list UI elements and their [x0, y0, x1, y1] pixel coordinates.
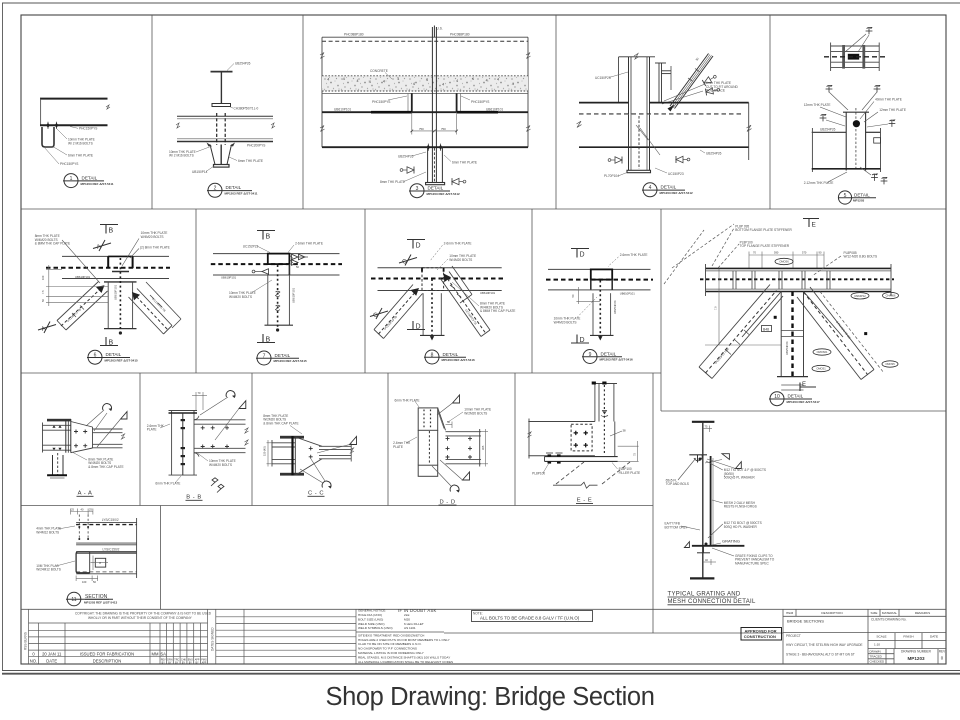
svg-text:PHC200PYS: PHC200PYS: [247, 144, 265, 148]
svg-text:BOLT SIZE (UNO): BOLT SIZE (UNO): [358, 617, 383, 621]
svg-text:PHC088P180: PHC088P180: [344, 32, 364, 36]
svg-text:MP1203: MP1203: [907, 656, 925, 661]
svg-text:DESCRIPTION: DESCRIPTION: [821, 611, 842, 615]
svg-text:PHC150PYS: PHC150PYS: [471, 100, 489, 104]
svg-text:2-6mm THK PLATE: 2-6mm THK PLATE: [620, 253, 648, 257]
svg-text:GRATING: GRATING: [722, 538, 740, 543]
svg-text:ALL MATERIAL U.FABRICATION SHA: ALL MATERIAL U.FABRICATION SHALL BE TO R…: [358, 660, 453, 664]
svg-text:M20: M20: [404, 617, 410, 621]
svg-text:BOTTOM ONLY: BOTTOM ONLY: [665, 525, 689, 529]
svg-text:REAL STANDS, M.S DISTANCE SHAF: REAL STANDS, M.S DISTANCE SHAFTS (M2) 10…: [358, 655, 450, 659]
svg-text:NO.: NO.: [30, 658, 37, 663]
svg-text:20 JAN 11: 20 JAN 11: [42, 651, 62, 656]
svg-text:MANUFACTURE SPEC: MANUFACTURE SPEC: [735, 561, 770, 565]
svg-text:PL70P104: PL70P104: [604, 174, 619, 178]
svg-text:B: B: [266, 234, 271, 241]
svg-text:UB610P101: UB610P101: [75, 275, 91, 279]
svg-text:MESH CONNECTION DETAIL: MESH CONNECTION DETAIL: [668, 599, 757, 605]
svg-text:W/2M20 BOLTS: W/2M20 BOLTS: [464, 412, 487, 416]
svg-text:UB254P26: UB254P26: [706, 151, 722, 155]
svg-text:UB254P26: UB254P26: [785, 341, 789, 355]
svg-text:U.S.: U.S.: [437, 27, 443, 31]
svg-text:150 (45): 150 (45): [263, 446, 267, 456]
svg-text:E: E: [802, 382, 806, 388]
svg-text:UC150P23: UC150P23: [668, 172, 684, 176]
svg-text:W/4M20 BOLTS: W/4M20 BOLTS: [141, 235, 164, 239]
svg-text:12mm THK PLATE: 12mm THK PLATE: [879, 108, 906, 112]
svg-text:W/24M12 BOLTS: W/24M12 BOLTS: [36, 568, 61, 572]
svg-text:OMOS1: OMOS1: [816, 367, 826, 371]
svg-text:DATE: DATE: [46, 658, 57, 663]
svg-text:UB610P101: UB610P101: [334, 108, 351, 112]
svg-text:TOP FLANGE PLATE STIFFENER: TOP FLANGE PLATE STIFFENER: [740, 244, 790, 248]
svg-text:UB254P26: UB254P26: [820, 128, 836, 132]
svg-text:D - D: D - D: [439, 499, 455, 505]
svg-text:W/ 2 M16 BOLTS: W/ 2 M16 BOLTS: [169, 154, 194, 158]
svg-text:BRIDGE SECTIONS: BRIDGE SECTIONS: [787, 619, 824, 624]
svg-text:ITEM: ITEM: [786, 611, 794, 615]
svg-text:RESTS FLNISH DRGS: RESTS FLNISH DRGS: [724, 505, 757, 509]
svg-text:BY: BY: [168, 661, 172, 664]
svg-text:FINISH: FINISH: [903, 634, 913, 638]
svg-text:4: 4: [343, 77, 345, 81]
svg-text:MP1203 REF Δ/ST-5415: MP1203 REF Δ/ST-5415: [274, 359, 308, 363]
svg-text:GENERAL NOTICE:: GENERAL NOTICE:: [358, 609, 386, 613]
svg-text:DETAIL: DETAIL: [854, 192, 870, 197]
svg-text:W/12-M20 8.8G BOLTS: W/12-M20 8.8G BOLTS: [844, 255, 878, 259]
svg-text:W/4M20 BOLTS: W/4M20 BOLTS: [209, 463, 232, 467]
svg-text:MP1203: MP1203: [853, 199, 865, 203]
svg-text:UB610P101: UB610P101: [620, 291, 636, 295]
svg-text:DETAIL: DETAIL: [601, 351, 617, 356]
svg-text:DETAIL: DETAIL: [661, 185, 677, 190]
svg-text:W/4M20 BOLTS: W/4M20 BOLTS: [554, 320, 577, 324]
svg-text:W/ 2 M16 BOLTS: W/ 2 M16 BOLTS: [68, 141, 93, 145]
svg-text:6 LEG FILLET: 6 LEG FILLET: [404, 622, 424, 626]
svg-text:6mm THK PLATE: 6mm THK PLATE: [452, 161, 477, 165]
svg-text:D: D: [416, 324, 421, 331]
svg-text:E - E: E - E: [577, 498, 592, 504]
svg-text:4: 4: [497, 77, 499, 81]
svg-text:4: 4: [486, 78, 488, 82]
svg-text:1:10: 1:10: [874, 643, 880, 647]
svg-text:REV: REV: [939, 650, 946, 654]
svg-text:8mm THK PLATE: 8mm THK PLATE: [380, 180, 405, 184]
svg-text:6mm THK PLATE: 6mm THK PLATE: [68, 154, 93, 158]
svg-text:CONSTRUCTION: CONSTRUCTION: [744, 634, 776, 639]
svg-text:OMOS6: OMOS6: [779, 260, 789, 264]
svg-text:50SQx5 PL WASHER: 50SQx5 PL WASHER: [724, 476, 756, 480]
svg-text:MP1203 REF Δ/ST-5416: MP1203 REF Δ/ST-5416: [442, 358, 476, 362]
svg-text:6mm THK PLATE: 6mm THK PLATE: [155, 482, 180, 486]
svg-text:DESCRIPTION: DESCRIPTION: [93, 658, 122, 663]
svg-text:4: 4: [512, 82, 514, 86]
svg-text:TYPICAL GRATING AND: TYPICAL GRATING AND: [668, 591, 741, 597]
svg-text:BOTTOM FLANGE PLATE STIFFENER: BOTTOM FLANGE PLATE STIFFENER: [735, 228, 792, 232]
svg-text:DETAIL: DETAIL: [275, 353, 291, 358]
svg-text:W/4M12 BOLTS: W/4M12 BOLTS: [36, 530, 59, 534]
svg-text:STAGE 3 - BEHAVIOURAL ALT D ST: STAGE 3 - BEHAVIOURAL ALT D ST-MT GN ST: [786, 652, 855, 656]
svg-text:4: 4: [472, 77, 474, 81]
svg-text:D: D: [416, 243, 421, 250]
svg-text:IF IN DOUBT ASK: IF IN DOUBT ASK: [398, 608, 437, 613]
svg-text:UB610P101: UB610P101: [221, 276, 237, 280]
svg-text:22ø: 22ø: [404, 613, 409, 617]
svg-text:ISSUED FOR FABRICATION: ISSUED FOR FABRICATION: [80, 651, 134, 656]
svg-text:DETAIL: DETAIL: [226, 185, 242, 190]
svg-text:4: 4: [369, 80, 371, 84]
svg-text:MP1203 REF Δ/ST-5412: MP1203 REF Δ/ST-5412: [660, 191, 694, 195]
svg-text:RSS BLKNS: RSS BLKNS: [24, 632, 28, 650]
svg-text:REMARKS: REMARKS: [915, 611, 930, 615]
svg-text:ALL BOLTS TO BE GRADE 8.8 GALV: ALL BOLTS TO BE GRADE 8.8 GALV / TF (U.N…: [480, 616, 580, 621]
svg-text:UB610P101: UB610P101: [480, 291, 496, 295]
svg-text:SIZE: SIZE: [871, 611, 878, 615]
svg-text:& 8mm THK CAP PLATE: & 8mm THK CAP PLATE: [263, 422, 298, 426]
svg-text:750: 750: [419, 127, 424, 131]
svg-text:7.5: 7.5: [41, 290, 45, 294]
svg-text:12mm THK PLATE: 12mm THK PLATE: [804, 103, 831, 107]
svg-text:UC152P23: UC152P23: [243, 244, 259, 248]
svg-text:HWY CIRCUIT, THE STELRIN HIGH: HWY CIRCUIT, THE STELRIN HIGH WAY UPGRAD…: [786, 643, 863, 647]
svg-text:DETAIL: DETAIL: [106, 352, 122, 357]
svg-text:BY: BY: [175, 661, 179, 664]
svg-text:SA: SA: [160, 651, 166, 656]
svg-text:CLAD TO BE ON SITE OF MEMBERS: CLAD TO BE ON SITE OF MEMBERS U.N.O.: [358, 642, 422, 646]
svg-text:OMOS5: OMOS5: [885, 362, 895, 366]
svg-text:MP1203 REF Δ/ST-5413: MP1203 REF Δ/ST-5413: [84, 601, 118, 605]
svg-text:COPYRIGHT: THE DRAWING IS THE: COPYRIGHT: THE DRAWING IS THE PROPERTY O…: [75, 612, 212, 616]
svg-text:UB254P26: UB254P26: [613, 300, 617, 314]
svg-text:MP1203 REF Δ/ST-5417: MP1203 REF Δ/ST-5417: [787, 400, 821, 404]
svg-text:B - B: B - B: [186, 495, 201, 501]
svg-text:APPROVED FOR: APPROVED FOR: [745, 629, 777, 634]
svg-text:UB254P26: UB254P26: [235, 62, 251, 66]
svg-text:7.0: 7.0: [714, 306, 718, 310]
svg-text:HOLE DIA (UNO): HOLE DIA (UNO): [358, 613, 382, 617]
svg-text:40mm THK PLATE: 40mm THK PLATE: [875, 98, 902, 102]
svg-text:LYS/C150/2: LYS/C150/2: [103, 548, 120, 552]
svg-text:DATES SIGNED: DATES SIGNED: [211, 627, 215, 651]
svg-text:BY: BY: [195, 661, 199, 664]
svg-text:UB150P14: UB150P14: [192, 170, 208, 174]
svg-text:4: 4: [383, 79, 385, 83]
svg-text:WHOLLY OR IN PART WITHOUT THEI: WHOLLY OR IN PART WITHOUT THEIR CONSENT …: [88, 616, 193, 620]
svg-text:6mm THK PLATE: 6mm THK PLATE: [395, 398, 420, 402]
svg-text:MATERIAL: MATERIAL: [882, 611, 898, 615]
svg-text:4: 4: [413, 82, 415, 86]
svg-text:4: 4: [442, 83, 444, 87]
svg-text:UB610P101: UB610P101: [114, 284, 118, 300]
svg-text:PROJECT: PROJECT: [786, 634, 801, 638]
svg-text:4: 4: [426, 78, 428, 82]
svg-text:4: 4: [397, 77, 399, 81]
svg-text:MP1203 REF Δ/ST-5411: MP1203 REF Δ/ST-5411: [81, 182, 114, 186]
svg-text:UB610P101: UB610P101: [292, 287, 296, 303]
svg-text:PLATE: PLATE: [393, 445, 403, 449]
svg-text:UB254P26: UB254P26: [398, 154, 414, 158]
svg-text:C - C: C - C: [308, 491, 324, 497]
svg-text:& 8mm THK CAP PLATE: & 8mm THK CAP PLATE: [88, 465, 123, 469]
svg-text:SITE/EXG TREATMENT: RED OXID: SITE/EXG TREATMENT: RED OXIDE/ZN/ETCH: [358, 633, 424, 637]
svg-text:D: D: [580, 252, 585, 259]
svg-text:W/4M20 BOLTS: W/4M20 BOLTS: [229, 295, 252, 299]
svg-text:PLATE: PLATE: [147, 428, 157, 432]
svg-text:Shop Drawing: Bridge Section: Shop Drawing: Bridge Section: [326, 683, 655, 711]
svg-text:UC150P23: UC150P23: [595, 76, 611, 80]
svg-text:2-6mm THK PLATE: 2-6mm THK PLATE: [295, 242, 323, 246]
svg-text:100: 100: [82, 580, 87, 584]
svg-text:MP1203 REF Δ/ST-5415: MP1203 REF Δ/ST-5415: [105, 358, 139, 362]
svg-text:4: 4: [327, 78, 329, 82]
svg-text:SCALE: SCALE: [876, 634, 886, 638]
svg-text:100: 100: [41, 275, 45, 280]
svg-text:BY: BY: [189, 661, 193, 664]
svg-text:2-6mm THK PLATE: 2-6mm THK PLATE: [444, 242, 472, 246]
svg-text:D: D: [580, 337, 585, 344]
svg-text:50SQ HD PL WASHER: 50SQ HD PL WASHER: [724, 525, 758, 529]
svg-text:LYS/C150/2: LYS/C150/2: [102, 518, 119, 522]
svg-text:570: 570: [802, 251, 807, 255]
svg-text:ROD BRACE: ROD BRACE: [706, 89, 725, 93]
svg-text:MP1203 REF Δ/ST-5416: MP1203 REF Δ/ST-5416: [600, 358, 634, 362]
svg-text:B: B: [109, 340, 114, 347]
svg-text:PHC150PYS: PHC150PYS: [372, 100, 390, 104]
svg-text:CHECKED: CHECKED: [870, 660, 886, 664]
svg-text:E: E: [812, 222, 817, 229]
svg-text:CLIENTS DRAWING No.: CLIENTS DRAWING No.: [871, 618, 907, 622]
svg-text:38: 38: [623, 429, 627, 433]
svg-text:TRACED: TRACED: [870, 654, 883, 658]
svg-text:WELD SYMBOLS (UNO): WELD SYMBOLS (UNO): [358, 626, 393, 630]
svg-text:CHA666: CHA666: [886, 294, 896, 298]
svg-text:B: B: [266, 337, 271, 344]
svg-text:B: B: [109, 228, 114, 235]
svg-text:BY: BY: [182, 661, 186, 664]
svg-text:DETAIL: DETAIL: [428, 186, 444, 191]
svg-text:WELD SIZE (UNO): WELD SIZE (UNO): [358, 622, 384, 626]
svg-text:W/4M20 BOLTS: W/4M20 BOLTS: [449, 258, 472, 262]
svg-text:305: 305: [481, 445, 485, 450]
svg-text:DETAIL: DETAIL: [443, 352, 459, 357]
svg-text:NO GASPOWER TO 'P.F' CONNECTIO: NO GASPOWER TO 'P.F' CONNECTIONS: [358, 647, 417, 651]
svg-text:A - A: A - A: [78, 491, 93, 497]
svg-text:DATE: DATE: [930, 634, 938, 638]
svg-text:DETAIL: DETAIL: [82, 176, 98, 181]
svg-text:FILLER PLATE: FILLER PLATE: [619, 471, 641, 475]
svg-text:MATERIAL LISTING IS FOR ORDERI: MATERIAL LISTING IS FOR ORDERING ONLY: [358, 651, 424, 655]
svg-text:MP1203 REF Δ/ST-5411: MP1203 REF Δ/ST-5411: [225, 192, 258, 196]
svg-text:DRAWING NUMBER: DRAWING NUMBER: [901, 650, 932, 654]
svg-text:CH380P50/T1L-0: CH380P50/T1L-0: [234, 106, 259, 110]
svg-text:4: 4: [357, 79, 359, 83]
svg-text:AS 1101: AS 1101: [404, 626, 416, 630]
svg-text:DETAIL: DETAIL: [788, 394, 804, 399]
svg-text:(2) 8mm THK PLATE: (2) 8mm THK PLATE: [140, 245, 170, 249]
svg-text:750: 750: [441, 127, 446, 131]
svg-text:DRAWN: DRAWN: [870, 649, 881, 653]
svg-text:APP: APP: [202, 661, 207, 664]
svg-text:& 8MM THK CAP PLATE: & 8MM THK CAP PLATE: [480, 309, 515, 313]
svg-text:6mm THK PLATE: 6mm THK PLATE: [238, 159, 263, 163]
svg-text:MM: MM: [152, 651, 159, 656]
svg-text:590: 590: [774, 251, 779, 255]
svg-text:4: 4: [456, 79, 458, 83]
svg-text:UM64P12: UM64P12: [854, 294, 866, 298]
svg-text:TOP AND BOLS: TOP AND BOLS: [666, 482, 689, 486]
svg-text:OMOS61: OMOS61: [817, 350, 828, 354]
svg-text:HOLES ARE 2 USED PLTS ON OR MO: HOLES ARE 2 USED PLTS ON OR MOST MEMBERS…: [358, 638, 450, 642]
svg-text:B48: B48: [763, 327, 769, 331]
svg-text:PHC088P180: PHC088P180: [450, 32, 470, 36]
svg-text:BY: BY: [162, 661, 166, 664]
svg-text:PHC150PYS: PHC150PYS: [60, 162, 78, 166]
svg-text:PHC150PYS: PHC150PYS: [79, 127, 97, 131]
svg-text:MP1203 REF Δ/ST-5412: MP1203 REF Δ/ST-5412: [427, 192, 461, 196]
